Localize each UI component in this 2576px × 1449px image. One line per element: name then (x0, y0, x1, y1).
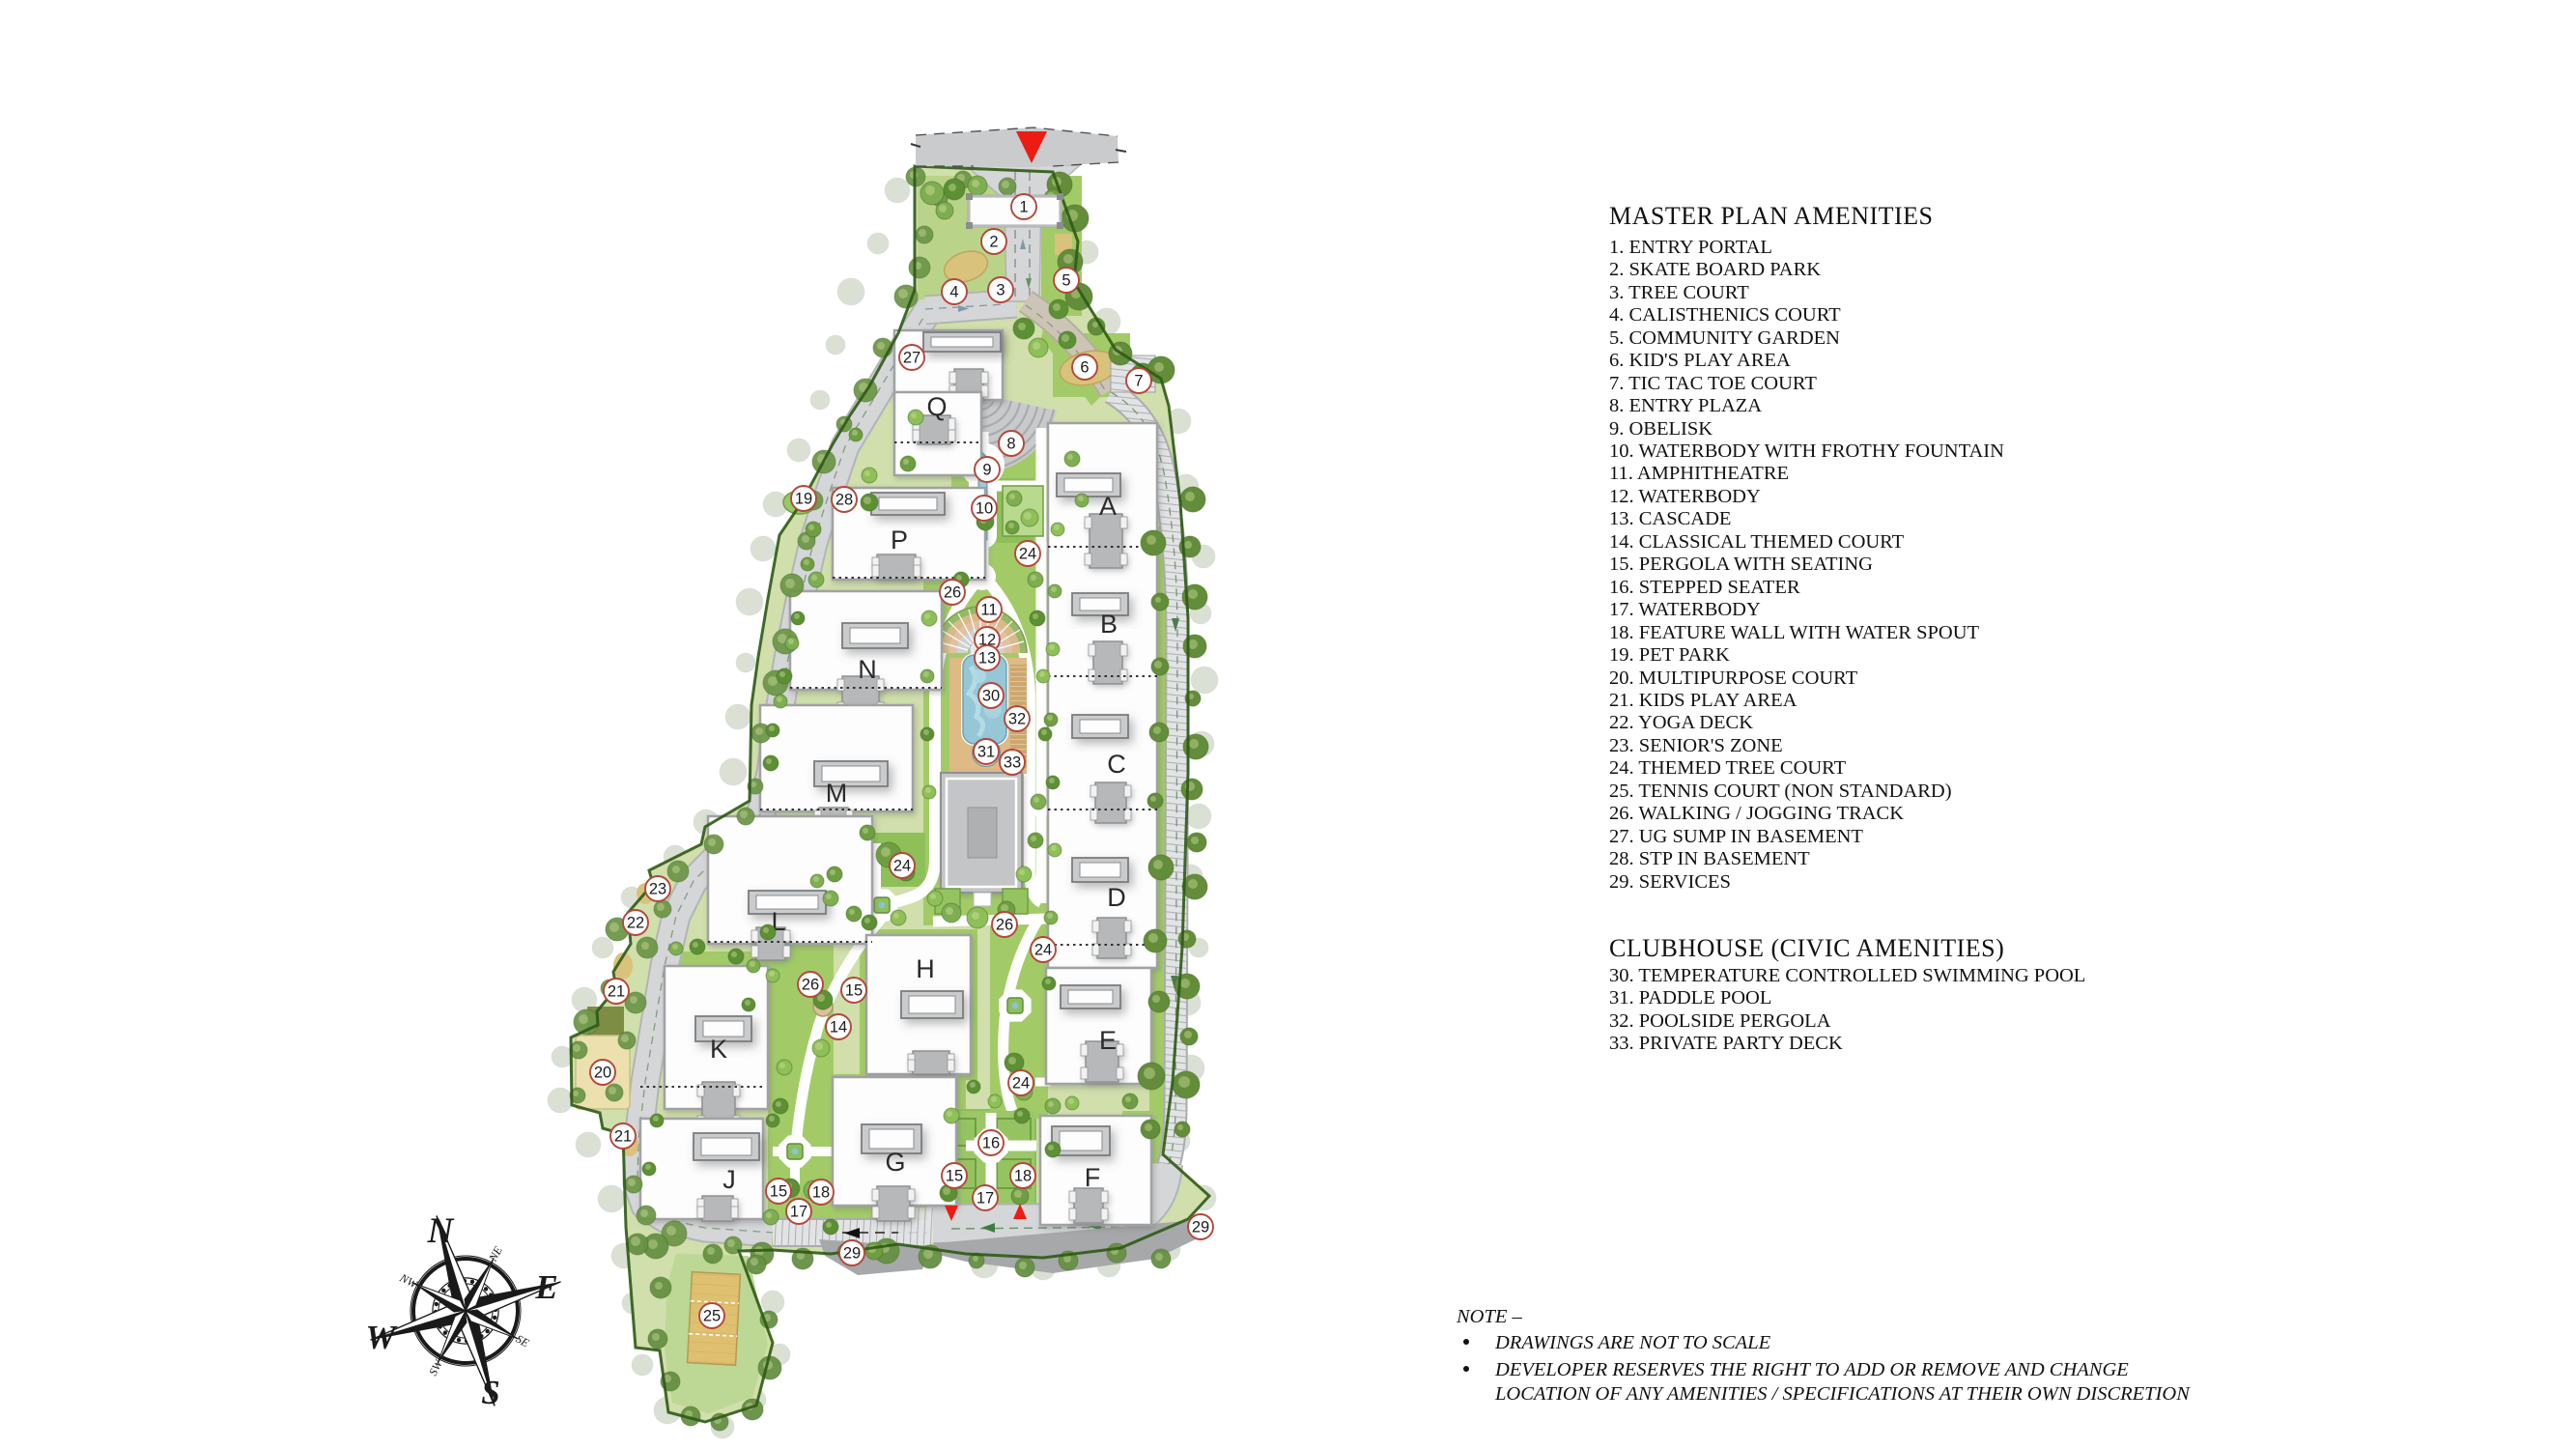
svg-text:29: 29 (843, 1245, 861, 1263)
svg-text:26: 26 (996, 917, 1013, 934)
svg-text:B: B (1100, 610, 1118, 639)
svg-text:31. PADDLE POOL: 31. PADDLE POOL (1609, 987, 1771, 1009)
svg-text:5. COMMUNITY GARDEN: 5. COMMUNITY GARDEN (1609, 327, 1840, 349)
svg-text:9. OBELISK: 9. OBELISK (1609, 418, 1713, 440)
svg-text:28: 28 (835, 492, 853, 509)
svg-text:C: C (1107, 750, 1126, 779)
svg-text:DRAWINGS ARE NOT TO SCALE: DRAWINGS ARE NOT TO SCALE (1494, 1332, 1771, 1353)
svg-text:P: P (891, 526, 908, 554)
svg-text:32. POOLSIDE PERGOLA: 32. POOLSIDE PERGOLA (1609, 1010, 1831, 1032)
svg-text:15. PERGOLA WITH SEATING: 15. PERGOLA WITH SEATING (1609, 554, 1873, 575)
svg-text:30: 30 (982, 688, 1000, 705)
svg-text:27. UG SUMP IN BASEMENT: 27. UG SUMP IN BASEMENT (1609, 826, 1863, 847)
svg-text:21: 21 (608, 983, 625, 1001)
svg-text:26: 26 (944, 584, 961, 602)
svg-text:24: 24 (1034, 942, 1052, 959)
svg-text:N: N (858, 655, 877, 684)
svg-text:2. SKATE BOARD PARK: 2. SKATE BOARD PARK (1609, 259, 1821, 280)
svg-text:32: 32 (1008, 711, 1026, 728)
svg-text:S: S (481, 1374, 499, 1411)
svg-text:D: D (1107, 883, 1126, 912)
svg-text:23. SENIOR'S ZONE: 23. SENIOR'S ZONE (1609, 735, 1783, 756)
svg-text:10. WATERBODY WITH FROTHY FOUN: 10. WATERBODY WITH FROTHY FOUNTAIN (1609, 440, 2004, 462)
svg-text:1. ENTRY PORTAL: 1. ENTRY PORTAL (1609, 237, 1772, 258)
svg-text:29. SERVICES: 29. SERVICES (1609, 871, 1731, 893)
svg-text:7: 7 (1134, 373, 1143, 390)
svg-text:15: 15 (946, 1168, 963, 1185)
svg-text:19: 19 (795, 491, 812, 508)
svg-text:25: 25 (703, 1308, 721, 1325)
svg-text:M: M (826, 779, 848, 808)
svg-text:A: A (1099, 492, 1117, 521)
svg-text:22: 22 (627, 915, 644, 932)
svg-text:J: J (722, 1165, 736, 1194)
svg-text:11: 11 (980, 602, 997, 619)
svg-text:3. TREE COURT: 3. TREE COURT (1609, 282, 1749, 303)
svg-text:24: 24 (1012, 1075, 1030, 1093)
svg-text:14: 14 (830, 1019, 847, 1037)
svg-text:21. KIDS PLAY AREA: 21. KIDS PLAY AREA (1609, 690, 1798, 711)
svg-text:17: 17 (790, 1204, 807, 1221)
svg-text:30. TEMPERATURE CONTROLLED SWI: 30. TEMPERATURE CONTROLLED SWIMMING POOL (1609, 965, 2085, 986)
svg-text:N: N (427, 1211, 455, 1251)
svg-text:21: 21 (614, 1128, 632, 1146)
svg-text:28. STP IN BASEMENT: 28. STP IN BASEMENT (1609, 848, 1810, 869)
svg-text:29: 29 (1192, 1219, 1209, 1236)
svg-text:27: 27 (903, 350, 920, 367)
svg-text:8. ENTRY PLAZA: 8. ENTRY PLAZA (1609, 395, 1762, 416)
svg-text:14. CLASSICAL THEMED COURT: 14. CLASSICAL THEMED COURT (1609, 531, 1905, 553)
svg-text:DEVELOPER RESERVES THE RIGHT T: DEVELOPER RESERVES THE RIGHT TO ADD OR R… (1494, 1359, 2129, 1380)
svg-text:G: G (885, 1148, 905, 1177)
svg-text:33: 33 (1004, 754, 1021, 772)
svg-text:18. FEATURE WALL WITH WATER SP: 18. FEATURE WALL WITH WATER SPOUT (1609, 622, 1980, 643)
svg-text:F: F (1085, 1163, 1101, 1192)
svg-text:4: 4 (949, 284, 958, 301)
svg-text:26: 26 (802, 977, 819, 994)
svg-text:H: H (916, 954, 935, 983)
svg-text:13: 13 (978, 650, 996, 668)
svg-text:5: 5 (1062, 272, 1070, 290)
svg-text:15: 15 (770, 1183, 787, 1201)
svg-text:MASTER PLAN AMENITIES: MASTER PLAN AMENITIES (1609, 202, 1934, 230)
svg-text:6: 6 (1080, 359, 1089, 377)
svg-text:33. PRIVATE PARTY DECK: 33. PRIVATE PARTY DECK (1609, 1033, 1843, 1054)
svg-text:17: 17 (977, 1190, 994, 1207)
svg-text:6. KID'S PLAY AREA: 6. KID'S PLAY AREA (1609, 350, 1791, 371)
svg-text:23: 23 (649, 881, 666, 898)
svg-text:LOCATION OF ANY AMENITIES / SP: LOCATION OF ANY AMENITIES / SPECIFICATIO… (1494, 1383, 2191, 1405)
svg-text:4. CALISTHENICS COURT: 4. CALISTHENICS COURT (1609, 304, 1841, 326)
svg-text:9: 9 (982, 462, 991, 479)
svg-text:20. MULTIPURPOSE COURT: 20. MULTIPURPOSE COURT (1609, 668, 1858, 689)
svg-text:8: 8 (1006, 436, 1015, 453)
svg-text:18: 18 (812, 1184, 830, 1202)
svg-text:Q: Q (926, 392, 947, 421)
svg-text:15: 15 (845, 982, 863, 1000)
svg-text:26. WALKING / JOGGING TRACK: 26. WALKING / JOGGING TRACK (1609, 803, 1904, 824)
svg-text:E: E (534, 1268, 557, 1306)
svg-text:NOTE –: NOTE – (1456, 1306, 1523, 1327)
svg-text:11. AMPHITHEATRE: 11. AMPHITHEATRE (1609, 463, 1789, 484)
svg-text:25. TENNIS COURT (NON STANDARD: 25. TENNIS COURT (NON STANDARD) (1609, 781, 1952, 802)
svg-text:K: K (710, 1035, 727, 1064)
svg-text:19. PET PARK: 19. PET PARK (1609, 644, 1730, 666)
svg-text:CLUBHOUSE (CIVIC AMENITIES): CLUBHOUSE (CIVIC AMENITIES) (1609, 934, 2004, 962)
svg-text:10: 10 (976, 500, 993, 518)
svg-text:W: W (365, 1319, 398, 1356)
svg-text:31: 31 (977, 744, 995, 761)
svg-text:24. THEMED TREE COURT: 24. THEMED TREE COURT (1609, 757, 1847, 779)
svg-text:17. WATERBODY: 17. WATERBODY (1609, 599, 1761, 620)
svg-text:E: E (1099, 1026, 1117, 1055)
svg-text:22. YOGA DECK: 22. YOGA DECK (1609, 712, 1753, 733)
svg-text:3: 3 (996, 282, 1005, 299)
svg-text:24: 24 (893, 858, 911, 875)
svg-text:2: 2 (989, 234, 998, 251)
svg-text:20: 20 (594, 1065, 611, 1082)
svg-text:24: 24 (1019, 546, 1036, 563)
svg-text:13. CASCADE: 13. CASCADE (1609, 508, 1731, 529)
svg-text:12. WATERBODY: 12. WATERBODY (1609, 486, 1761, 507)
svg-text:7. TIC TAC TOE COURT: 7. TIC TAC TOE COURT (1609, 373, 1817, 394)
svg-text:16. STEPPED SEATER: 16. STEPPED SEATER (1609, 577, 1800, 598)
svg-text:1: 1 (1019, 199, 1028, 216)
svg-text:16: 16 (982, 1135, 1000, 1152)
svg-text:18: 18 (1014, 1168, 1032, 1185)
